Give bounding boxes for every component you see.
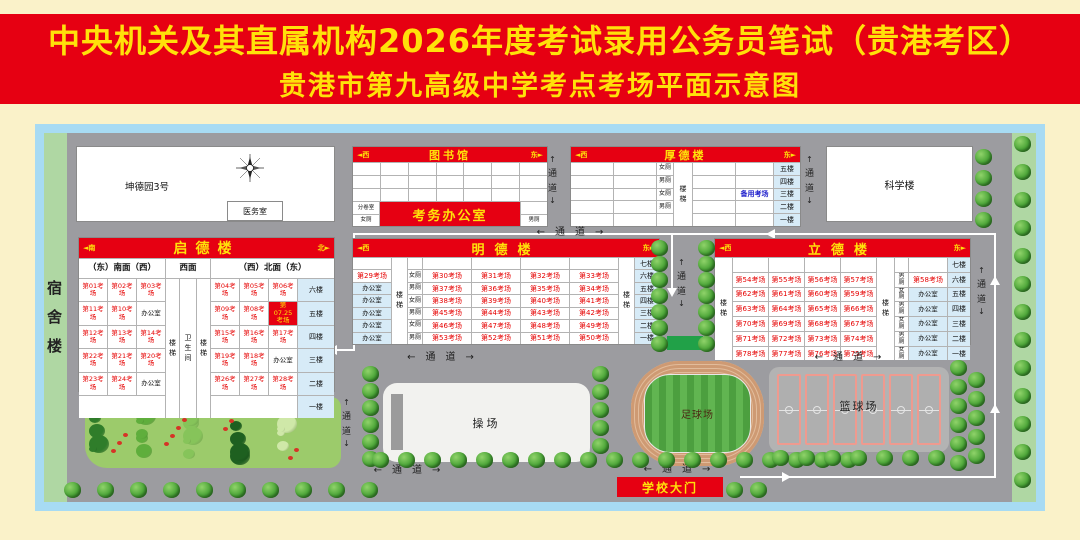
tree-icon: [196, 482, 213, 498]
stairs-cell: 楼梯: [392, 258, 407, 344]
tree-icon: [968, 391, 985, 407]
west-direction-label: ◄西: [357, 243, 369, 253]
floor-label: 五楼: [948, 288, 970, 302]
science-label: 科学楼: [885, 177, 915, 192]
tree-icon: [651, 336, 668, 352]
tree-icon: [97, 482, 114, 498]
floor-label: 五楼: [774, 163, 800, 175]
football-field: 足球场: [631, 361, 764, 466]
library-room-grid: [353, 162, 547, 201]
qidelou-grid: （东）南面（西） 西面 （西）北面（东） 楼梯 卫生间 楼梯 第01考场 第02…: [79, 258, 334, 418]
exam-room-cell: 第53考场: [423, 333, 471, 344]
route-arrow-up-icon: [990, 404, 1000, 413]
exam-room-cell: 第71考场: [733, 332, 768, 346]
up-arrow-icon: ↑: [343, 398, 350, 407]
tree-icon: [1014, 192, 1031, 208]
bush-icon: [230, 443, 250, 461]
exam-room-cell: 第32考场: [521, 270, 569, 281]
tree-icon: [592, 384, 609, 400]
floor-label: 一楼: [298, 396, 334, 418]
building-mingdelou: ◄西 明德楼 东► 楼梯 楼梯 七楼 第29考场 女厕 第30考场 第31考场 …: [352, 238, 660, 345]
mens-toilet-cell: 男厕: [657, 176, 673, 188]
floor-label: 四楼: [298, 326, 334, 348]
route-arrow-down-icon: [667, 288, 677, 297]
exam-room-cell: 第42考场: [570, 308, 618, 319]
tree-icon: [968, 429, 985, 445]
flower-icon: [111, 449, 116, 453]
houdelou-header: ◄西 厚德楼 东►: [571, 147, 800, 162]
tree-icon: [1014, 444, 1031, 460]
stairs-cell: 楼梯: [877, 258, 894, 360]
exam-room-cell: 第29考场: [353, 270, 391, 281]
football-label: 足球场: [681, 406, 714, 421]
tree-icon: [975, 170, 992, 186]
tree-icon: [698, 272, 715, 288]
bush-icon: [136, 429, 148, 439]
tree-icon: [163, 482, 180, 498]
floor-label: 四楼: [948, 302, 970, 316]
tree-icon: [362, 434, 379, 450]
exam-room-cell: 第78考场: [733, 347, 768, 361]
exam-room-cell: 第66考场: [841, 302, 876, 316]
exam-room-cell: 第73考场: [805, 332, 840, 346]
qidelou-title: 启德楼: [95, 238, 317, 258]
exam-room-cell: 第64考场: [769, 302, 804, 316]
down-arrow-icon: ↓: [678, 299, 685, 308]
exam-room-cell: 第08考场: [240, 302, 268, 324]
exam-room-cell: 第54考场: [733, 273, 768, 287]
office-cell: 办公室: [353, 295, 391, 306]
tree-icon: [698, 320, 715, 336]
corridor-right-of-lide: ↑ 通 道 ↓: [977, 266, 986, 316]
exam-room-cell: 第45考场: [423, 308, 471, 319]
route-line-top: [353, 233, 996, 235]
office-cell: 办公室: [269, 349, 297, 371]
office-cell: 办公室: [909, 332, 947, 346]
stairs-cell: 楼梯: [166, 279, 179, 418]
route-line-right: [994, 233, 996, 478]
tree-icon: [798, 450, 815, 466]
exam-room-cell: 第68考场: [805, 317, 840, 331]
paper-splitting-room: 分卷室: [353, 202, 379, 214]
north-direction-label: 北►: [318, 243, 330, 253]
tree-icon: [606, 452, 623, 468]
tree-icon: [698, 256, 715, 272]
building-lidelou: ◄西 立德楼 东► 楼梯 楼梯 七楼 第54考场 第55考场 第56考场 第57…: [714, 238, 971, 345]
flower-icon: [117, 441, 122, 445]
tree-icon: [1014, 136, 1031, 152]
west-direction-label: ◄西: [719, 243, 731, 253]
tree-icon: [1014, 388, 1031, 404]
mingdelou-grid: 楼梯 楼梯 七楼 第29考场 女厕 第30考场 第31考场 第32考场 第33考…: [353, 257, 659, 344]
football-pitch: 足球场: [644, 374, 751, 453]
exam-room-cell: 第33考场: [570, 270, 618, 281]
tree-icon: [362, 417, 379, 433]
building-houdelou: ◄西 厚德楼 东► 楼梯 女厕 五楼 男厕 四楼 女厕 备用考场 三楼 男厕 二…: [570, 146, 801, 227]
tree-icon: [651, 240, 668, 256]
tree-icon: [950, 360, 967, 376]
exam-room-cell: 第52考场: [472, 333, 520, 344]
houdelou-grid: 楼梯 女厕 五楼 男厕 四楼 女厕 备用考场 三楼 男厕 二楼 一楼: [571, 162, 800, 226]
lidelou-grid: 楼梯 楼梯 七楼 第54考场 第55考场 第56考场 第57考场 男厕 第58考…: [715, 257, 970, 360]
tree-icon: [950, 379, 967, 395]
floor-label: 四楼: [774, 176, 800, 188]
tree-icon: [950, 436, 967, 452]
exam-room-cell: 第46考场: [423, 320, 471, 331]
tree-icon: [850, 450, 867, 466]
tree-icon: [64, 482, 81, 498]
tree-icon: [1014, 220, 1031, 236]
tree-icon: [398, 452, 415, 468]
tree-icon: [975, 149, 992, 165]
tree-icon: [1014, 276, 1031, 292]
exam-room-cell: 第04考场: [211, 279, 239, 301]
bush-icon: [183, 449, 195, 459]
exam-room-cell: 第49考场: [570, 320, 618, 331]
flower-icon: [288, 456, 293, 460]
exam-room-cell: 第01考场: [79, 279, 107, 301]
office-cell: 办公室: [353, 308, 391, 319]
exam-room-cell: 第43考场: [521, 308, 569, 319]
exam-room-cell: 第51考场: [521, 333, 569, 344]
up-arrow-icon: ↑: [978, 266, 985, 275]
tree-icon: [362, 383, 379, 399]
exam-room-cell: 第55考场: [769, 273, 804, 287]
bush-icon: [136, 418, 144, 424]
tree-icon: [750, 482, 767, 498]
tree-icon: [362, 400, 379, 416]
south-direction-label: ◄南: [83, 243, 95, 253]
exam-room-cell: 第59考场: [841, 288, 876, 302]
tree-icon: [968, 372, 985, 388]
west-direction-label: ◄西: [575, 150, 587, 160]
floor-label: 三楼: [298, 349, 334, 371]
tree-icon: [362, 366, 379, 382]
floor-label: 二楼: [948, 332, 970, 346]
up-arrow-icon: ↑: [678, 258, 685, 267]
floor-label: 二楼: [774, 201, 800, 213]
tree-icon: [592, 402, 609, 418]
corridor-mingde-lide: ↑ 通 道 ↓: [677, 258, 686, 308]
exam-room-cell: 第63考场: [733, 302, 768, 316]
corridor-houde-science: ↑ 通 道 ↓: [805, 155, 814, 205]
east-direction-label: 东►: [954, 243, 966, 253]
bush-icon: [277, 441, 289, 451]
exam-room-cell: 第67考场: [841, 317, 876, 331]
exam-room-cell: 第61考场: [769, 288, 804, 302]
office-cell: 办公室: [137, 302, 165, 324]
womens-toilet-cell: 女厕: [353, 215, 379, 227]
tree-icon: [736, 452, 753, 468]
exam-room-cell: 第28考场: [269, 373, 297, 395]
corridor-library-houde: ↑ 通 道 ↓: [548, 155, 557, 205]
floor-label: 六楼: [298, 279, 334, 301]
floor-label: 五楼: [298, 302, 334, 324]
exam-room-cell: 第41考场: [570, 295, 618, 306]
down-arrow-icon: ↓: [978, 307, 985, 316]
corridor-below-lide: ← 通 道 →: [793, 348, 903, 363]
exam-room-cell: 第50考场: [570, 333, 618, 344]
exam-room-cell: 第23考场: [79, 373, 107, 395]
exam-room-cell: 第16考场: [240, 326, 268, 348]
office-cell: 办公室: [909, 347, 947, 361]
exam-room-cell: 第02考场: [108, 279, 136, 301]
mens-toilet-cell: 男厕: [895, 332, 908, 346]
qidelou-header: ◄南 启德楼 北►: [79, 238, 334, 258]
exam-room-cell: 第69考场: [769, 317, 804, 331]
tree-icon: [592, 420, 609, 436]
east-direction-label: 东►: [784, 150, 796, 160]
flower-icon: [229, 419, 234, 423]
lidelou-title: 立德楼: [731, 239, 953, 258]
mens-toilet-cell: 男厕: [657, 201, 673, 213]
exam-room-cell: 第70考场: [733, 317, 768, 331]
floor-label: 六楼: [948, 273, 970, 287]
school-gate: 学校大门: [617, 477, 723, 497]
stairs-cell: 楼梯: [674, 163, 692, 226]
exam-room-cell: 第11考场: [79, 302, 107, 324]
exam-room-cell: 第24考场: [108, 373, 136, 395]
south-face-header: （东）南面（西）: [79, 259, 165, 278]
building-qidelou: ◄南 启德楼 北► （东）南面（西） 西面 （西）北面（东） 楼梯 卫生间 楼梯…: [78, 237, 335, 392]
tree-icon: [1014, 472, 1031, 488]
exam-room-cell: 第03考场: [137, 279, 165, 301]
exam-room-cell: 第10考场: [108, 302, 136, 324]
down-arrow-icon: ↓: [806, 196, 813, 205]
down-arrow-icon: ↓: [549, 196, 556, 205]
tree-icon: [651, 256, 668, 272]
up-arrow-icon: ↑: [806, 155, 813, 164]
exam-room-cell: 第60考场: [805, 288, 840, 302]
route-arrow-right-icon: [782, 472, 791, 482]
exam-room-cell: 第35考场: [521, 283, 569, 294]
exam-room-cell: 第21考场: [108, 349, 136, 371]
floor-label: 一楼: [948, 347, 970, 361]
flower-icon: [223, 427, 228, 431]
exam-room-cell: 第20考场: [137, 349, 165, 371]
stairs-cell: 楼梯: [197, 279, 210, 418]
compass-icon: [235, 153, 265, 183]
womens-toilet-cell: 女厕: [408, 295, 422, 306]
floor-label: 二楼: [298, 373, 334, 395]
tree-icon: [554, 452, 571, 468]
tree-icon: [476, 452, 493, 468]
tree-icon: [372, 452, 389, 468]
stage-platform: [391, 394, 403, 450]
lidelou-header: ◄西 立德楼 东►: [715, 239, 970, 257]
tree-icon: [658, 452, 675, 468]
tree-icon: [450, 452, 467, 468]
flower-icon: [164, 442, 169, 446]
tree-icon: [130, 482, 147, 498]
tree-icon: [328, 482, 345, 498]
bush-icon: [183, 438, 191, 444]
exam-room-cell: 第72考场: [769, 332, 804, 346]
tree-icon: [424, 452, 441, 468]
floor-label: 七楼: [948, 258, 970, 272]
mens-toilet-cell: 男厕: [895, 302, 908, 316]
bush-icon: [136, 444, 152, 458]
flower-icon: [176, 426, 181, 430]
north-face-header: （西）北面（东）: [211, 259, 334, 278]
tree-icon: [772, 450, 789, 466]
exam-room-cell: 第27考场: [240, 373, 268, 395]
exam-room-cell: 第06考场: [269, 279, 297, 301]
title-banner: 中央机关及其直属机构2026年度考试录用公务员笔试（贵港考区） 贵港市第九高级中…: [0, 14, 1080, 104]
tree-icon: [361, 482, 378, 498]
bush-icon: [89, 446, 97, 452]
exam-room-cell: 第19考场: [211, 349, 239, 371]
exam-room-cell: 第74考场: [841, 332, 876, 346]
tree-icon: [262, 482, 279, 498]
west-direction-label: ◄西: [357, 150, 369, 160]
exam-room-cell: 第12考场: [79, 326, 107, 348]
womens-toilet-cell: 女厕: [895, 288, 908, 302]
office-cell: 办公室: [353, 320, 391, 331]
route-arrow-up-icon: [990, 276, 1000, 285]
tree-icon: [1014, 332, 1031, 348]
mens-toilet-cell: 男厕: [408, 308, 422, 319]
womens-toilet-cell: 女厕: [408, 270, 422, 281]
exam-room-cell: 第13考场: [108, 326, 136, 348]
basketball-label: 篮球场: [769, 398, 949, 414]
tree-icon: [950, 455, 967, 471]
playground-label: 操场: [473, 415, 501, 431]
empty-room-cell: [79, 396, 165, 418]
west-face-header: 西面: [166, 259, 210, 278]
exam-room-cell: 第62考场: [733, 288, 768, 302]
tree-icon: [698, 240, 715, 256]
corridor-top: ← 通 道 →: [495, 223, 645, 238]
tree-icon: [968, 410, 985, 426]
womens-toilet-cell: 女厕: [895, 317, 908, 331]
corridor-below-mingde: ← 通 道 →: [383, 348, 498, 363]
mens-toilet-cell: 男厕: [408, 283, 422, 294]
exam-room-cell: 第40考场: [521, 295, 569, 306]
exam-room-cell: 第05考场: [240, 279, 268, 301]
route-line-mingde-foot: [337, 349, 354, 351]
tree-icon: [1014, 248, 1031, 264]
tree-icon: [651, 304, 668, 320]
tree-icon: [592, 366, 609, 382]
route-line-bottom: [740, 476, 996, 478]
exam-room-cell: 第26考场: [211, 373, 239, 395]
dormitory-label: 宿舍楼: [41, 246, 68, 401]
playground: 操场: [383, 383, 590, 462]
tree-icon: [502, 452, 519, 468]
exam-room-cell: 第14考场: [137, 326, 165, 348]
exam-site-map-poster: 中央机关及其直属机构2026年度考试录用公务员笔试（贵港考区） 贵港市第九高级中…: [0, 0, 1080, 540]
womens-toilet-cell: 女厕: [657, 163, 673, 175]
mens-toilet-cell: 男厕: [895, 273, 908, 287]
tree-icon: [295, 482, 312, 498]
floor-label: 一楼: [774, 214, 800, 226]
tree-icon: [229, 482, 246, 498]
exam-room-cell: 第36考场: [472, 283, 520, 294]
womens-toilet-cell: 女厕: [408, 320, 422, 331]
exam-room-cell: 第22考场: [79, 349, 107, 371]
exam-room-cell: 第31考场: [472, 270, 520, 281]
exam-room-cell: 第44考场: [472, 308, 520, 319]
exam-room-cell: 第37考场: [423, 283, 471, 294]
mens-toilet-cell: 男厕: [408, 333, 422, 344]
library-title: 图书馆: [369, 147, 530, 163]
bush-icon: [277, 426, 285, 432]
tree-icon: [1014, 416, 1031, 432]
tree-icon: [698, 304, 715, 320]
tree-icon: [698, 288, 715, 304]
office-cell: 办公室: [909, 317, 947, 331]
up-arrow-icon: ↑: [549, 155, 556, 164]
office-cell: 办公室: [353, 283, 391, 294]
tree-icon: [975, 191, 992, 207]
page-title: 中央机关及其直属机构2026年度考试录用公务员笔试（贵港考区）: [48, 16, 1032, 62]
tree-icon: [824, 450, 841, 466]
exam-room-cell: 第38考场: [423, 295, 471, 306]
library-header: ◄西 图书馆 东►: [353, 147, 547, 162]
flower-icon: [294, 448, 299, 452]
tree-icon: [975, 212, 992, 228]
tree-icon: [950, 417, 967, 433]
office-cell: 办公室: [909, 288, 947, 302]
exam-room-cell: 第39考场: [472, 295, 520, 306]
tree-icon: [876, 450, 893, 466]
corridor-garden: ↑ 通 道 ↓: [342, 398, 351, 448]
office-cell: 办公室: [909, 302, 947, 316]
tree-icon: [684, 452, 701, 468]
exam-room-cell: 第48考场: [521, 320, 569, 331]
tree-icon: [651, 288, 668, 304]
exam-room-cell: 第17考场: [269, 326, 297, 348]
exam-room-cell: 第58考场: [909, 273, 947, 287]
backup-exam-room-cell: 备用考场: [736, 189, 773, 201]
exam-room-cell-highlight: 第07.25考场: [269, 302, 297, 324]
flower-icon: [123, 433, 128, 437]
medical-room: 医务室: [227, 201, 283, 221]
exam-room-cell: 第18考场: [240, 349, 268, 371]
exam-room-cell: 第57考场: [841, 273, 876, 287]
building-kundeyuan: 坤德园3号 医务室: [76, 146, 335, 222]
tree-icon: [528, 452, 545, 468]
tree-icon: [632, 452, 649, 468]
exam-room-cell: 第65考场: [805, 302, 840, 316]
tree-icon: [580, 452, 597, 468]
empty-room-cell: [521, 202, 547, 214]
tree-icon: [726, 482, 743, 498]
exam-room-cell: 第47考场: [472, 320, 520, 331]
tree-icon: [928, 450, 945, 466]
office-cell: 办公室: [137, 373, 165, 395]
tree-icon: [950, 398, 967, 414]
tree-icon: [651, 272, 668, 288]
restroom-cell: 卫生间: [180, 279, 196, 418]
stairs-cell: 楼梯: [715, 258, 732, 360]
tree-icon: [1014, 164, 1031, 180]
womens-toilet-cell: 女厕: [657, 189, 673, 201]
flower-icon: [170, 434, 175, 438]
empty-room-cell: [211, 396, 297, 418]
tree-icon: [710, 452, 727, 468]
building-library: ◄西 图书馆 东► 分卷室 考务办公室 女厕 男厕: [352, 146, 548, 227]
floor-label: 三楼: [948, 317, 970, 331]
exam-room-cell: 第09考场: [211, 302, 239, 324]
east-direction-label: 东►: [531, 150, 543, 160]
exam-room-cell: 第34考场: [570, 283, 618, 294]
office-cell: 办公室: [353, 333, 391, 344]
exam-room-cell: 第15考场: [211, 326, 239, 348]
page-subtitle: 贵港市第九高级中学考点考场平面示意图: [279, 64, 801, 103]
mingdelou-header: ◄西 明德楼 东►: [353, 239, 659, 257]
